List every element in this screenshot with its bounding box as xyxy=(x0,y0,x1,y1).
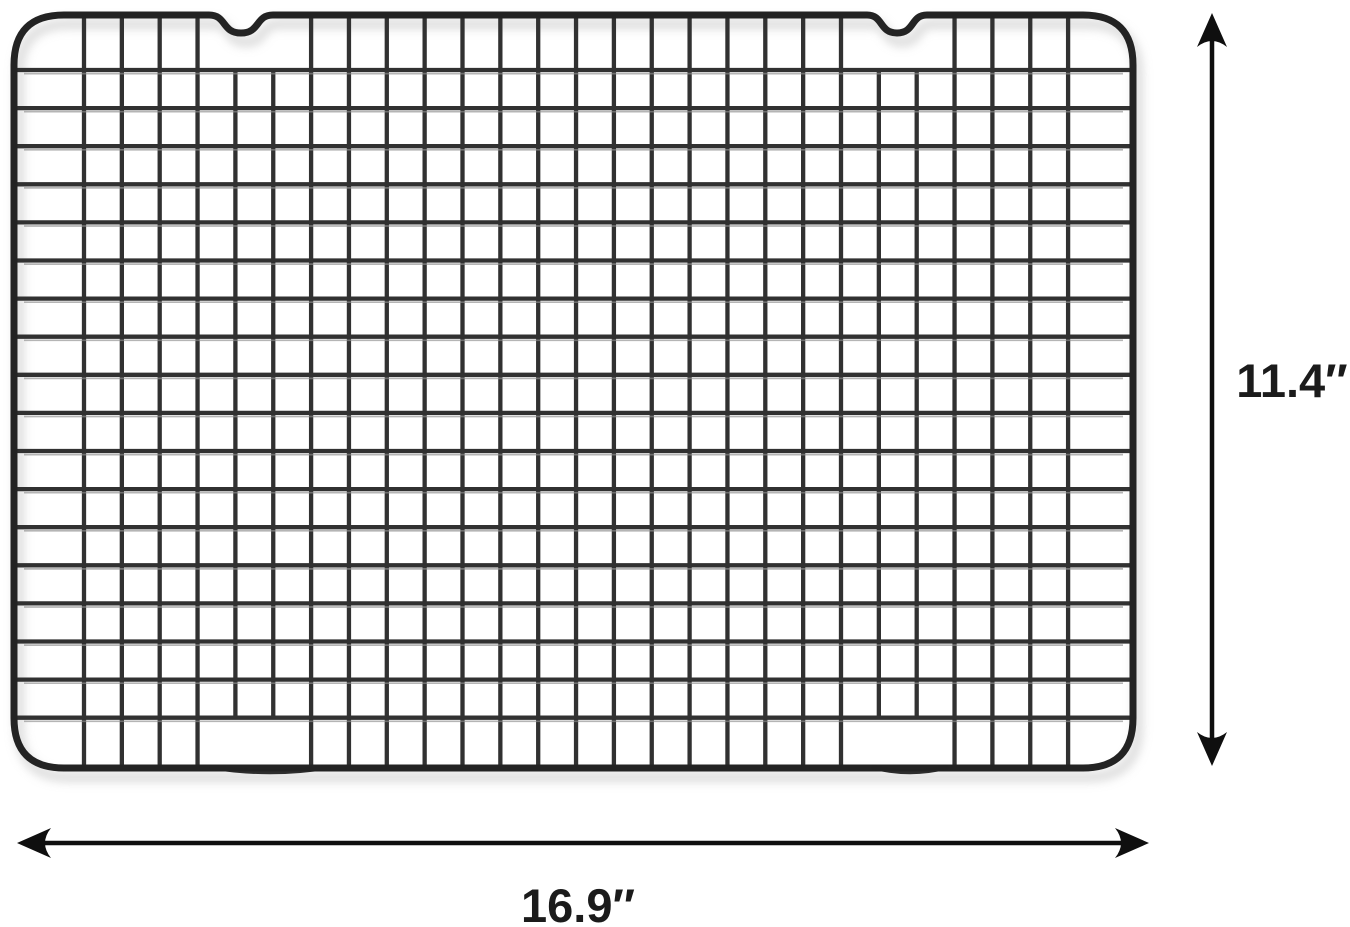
cooling-rack-grid xyxy=(14,15,1133,772)
rack-frame xyxy=(14,15,1133,768)
height-dimension-label: 11.4″ xyxy=(1236,354,1347,407)
cooling-rack-dimension-diagram: 11.4″ 16.9″ xyxy=(0,0,1350,927)
width-dimension-label: 16.9″ xyxy=(521,879,635,927)
rack-drop-shadow xyxy=(19,24,1138,777)
rack-shadow xyxy=(19,24,1138,777)
product-dimension-figure: 11.4″ 16.9″ xyxy=(0,0,1350,927)
